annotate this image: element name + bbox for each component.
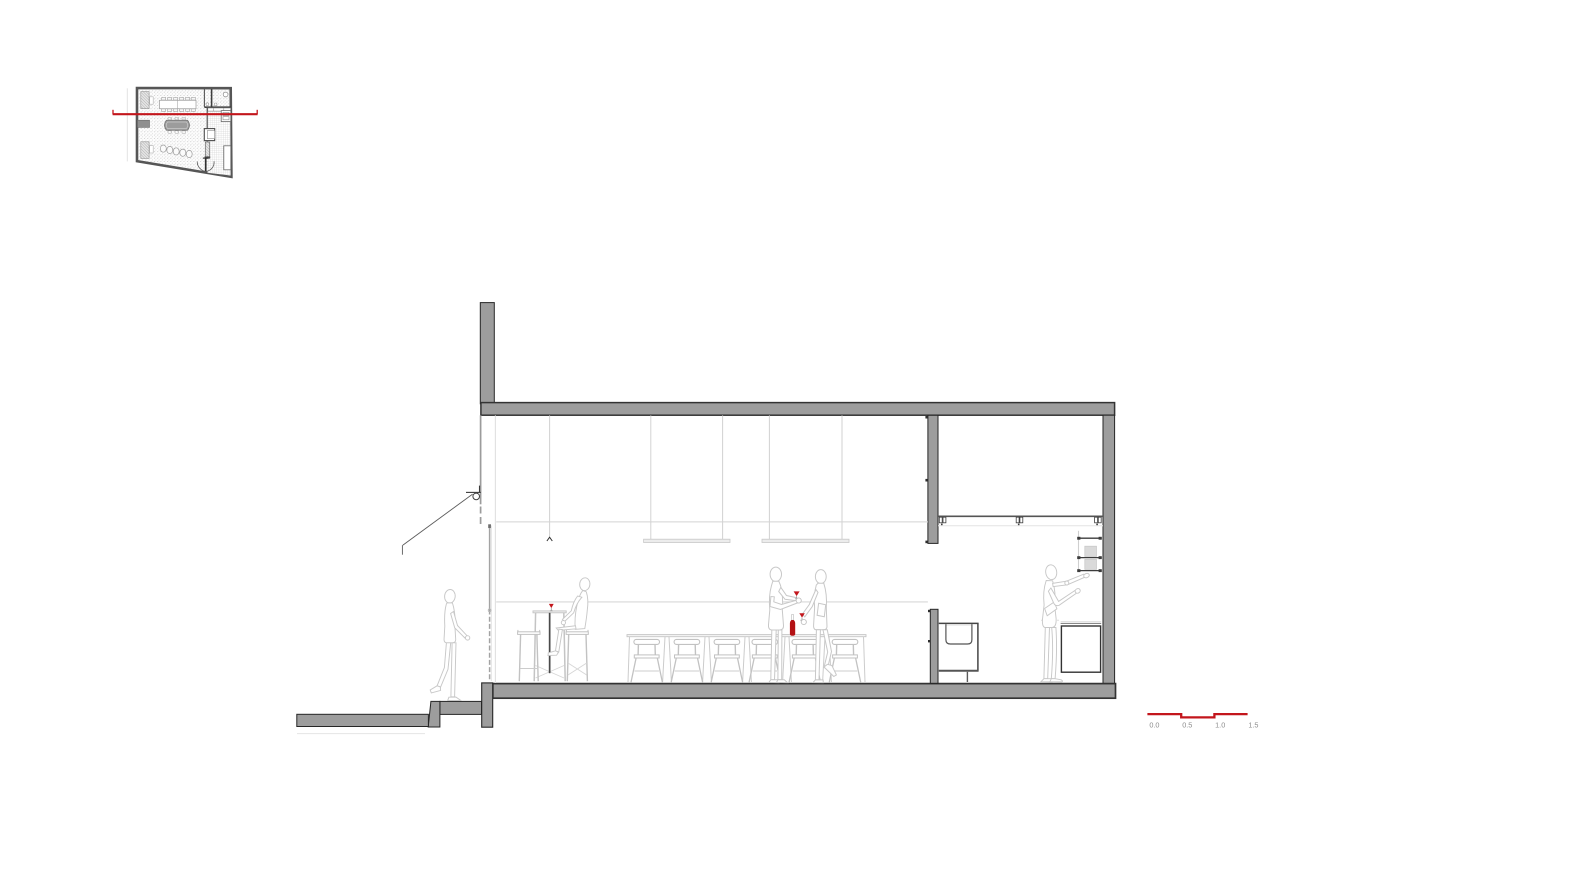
svg-text:1.0: 1.0: [1215, 721, 1225, 730]
svg-text:0.5: 0.5: [1182, 721, 1192, 730]
svg-text:1.5: 1.5: [1248, 721, 1258, 730]
svg-text:0.0: 0.0: [1149, 721, 1159, 730]
